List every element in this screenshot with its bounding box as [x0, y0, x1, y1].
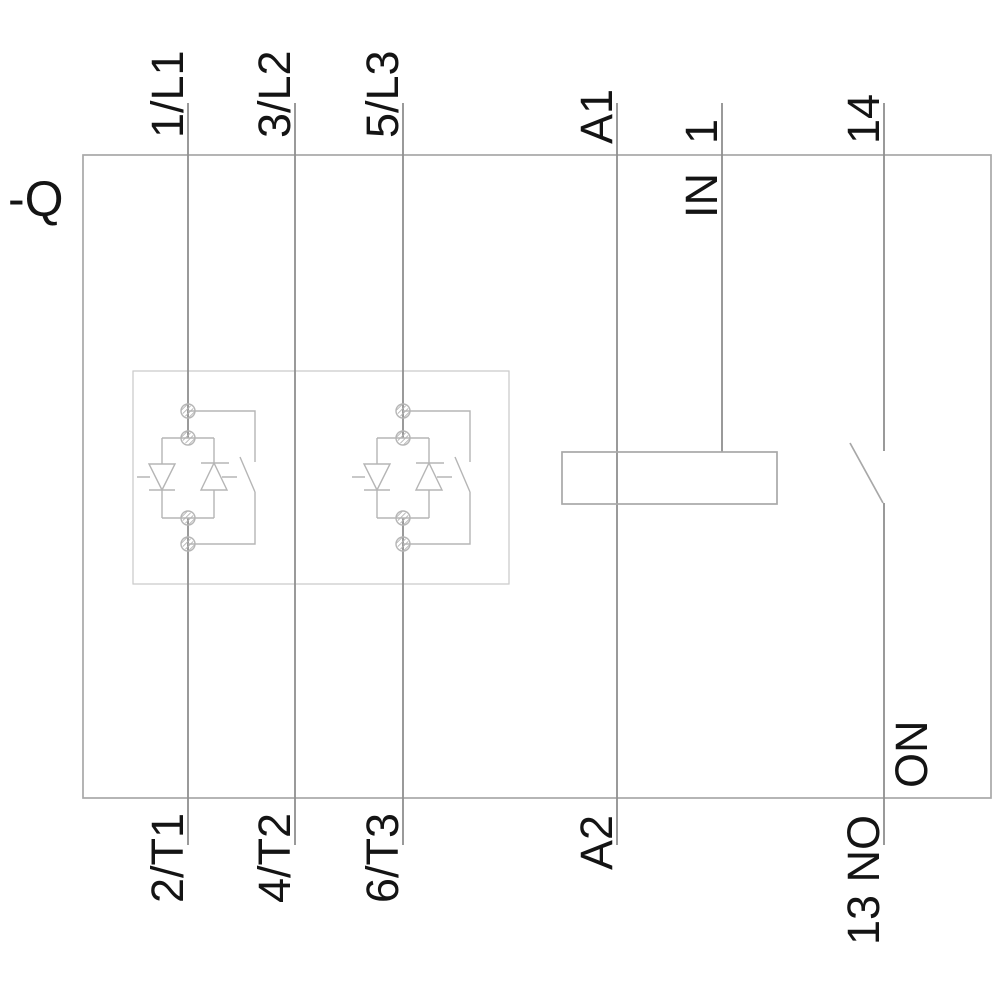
- wiring-diagram: -Q 1/L1 3/L2 5/L3 A1 1 IN 14 2/T1 4/T2 6…: [0, 0, 1000, 1000]
- terminal-label-13no: 13 NO: [841, 815, 886, 945]
- aux-contact-on-label: ON: [889, 721, 934, 789]
- coil-symbol: [562, 452, 777, 504]
- terminal-label-3l2: 3/L2: [252, 50, 297, 138]
- terminal-label-1l1: 1/L1: [145, 50, 190, 138]
- device-tag-label: -Q: [8, 174, 64, 224]
- terminal-label-6t3: 6/T3: [360, 813, 405, 903]
- terminal-label-in-number: 1: [679, 119, 724, 144]
- device-outline-box: [83, 155, 991, 798]
- terminal-label-a2: A2: [574, 815, 619, 870]
- terminal-label-4t2: 4/T2: [252, 813, 297, 903]
- aux-contact-blade: [850, 443, 883, 503]
- control-elements: [562, 443, 883, 504]
- thyristor-module-l3-icon: [352, 404, 470, 551]
- terminal-label-2t1: 2/T1: [145, 813, 190, 903]
- terminal-label-in-name: IN: [679, 173, 724, 218]
- terminal-label-14: 14: [841, 94, 886, 144]
- thyristor-module-l1-icon: [137, 404, 255, 551]
- thyristor-modules: [137, 404, 470, 551]
- thyristor-section-box: [133, 371, 509, 584]
- terminal-label-a1: A1: [574, 89, 619, 144]
- terminal-label-5l3: 5/L3: [360, 50, 405, 138]
- conductor-lines: [188, 103, 884, 845]
